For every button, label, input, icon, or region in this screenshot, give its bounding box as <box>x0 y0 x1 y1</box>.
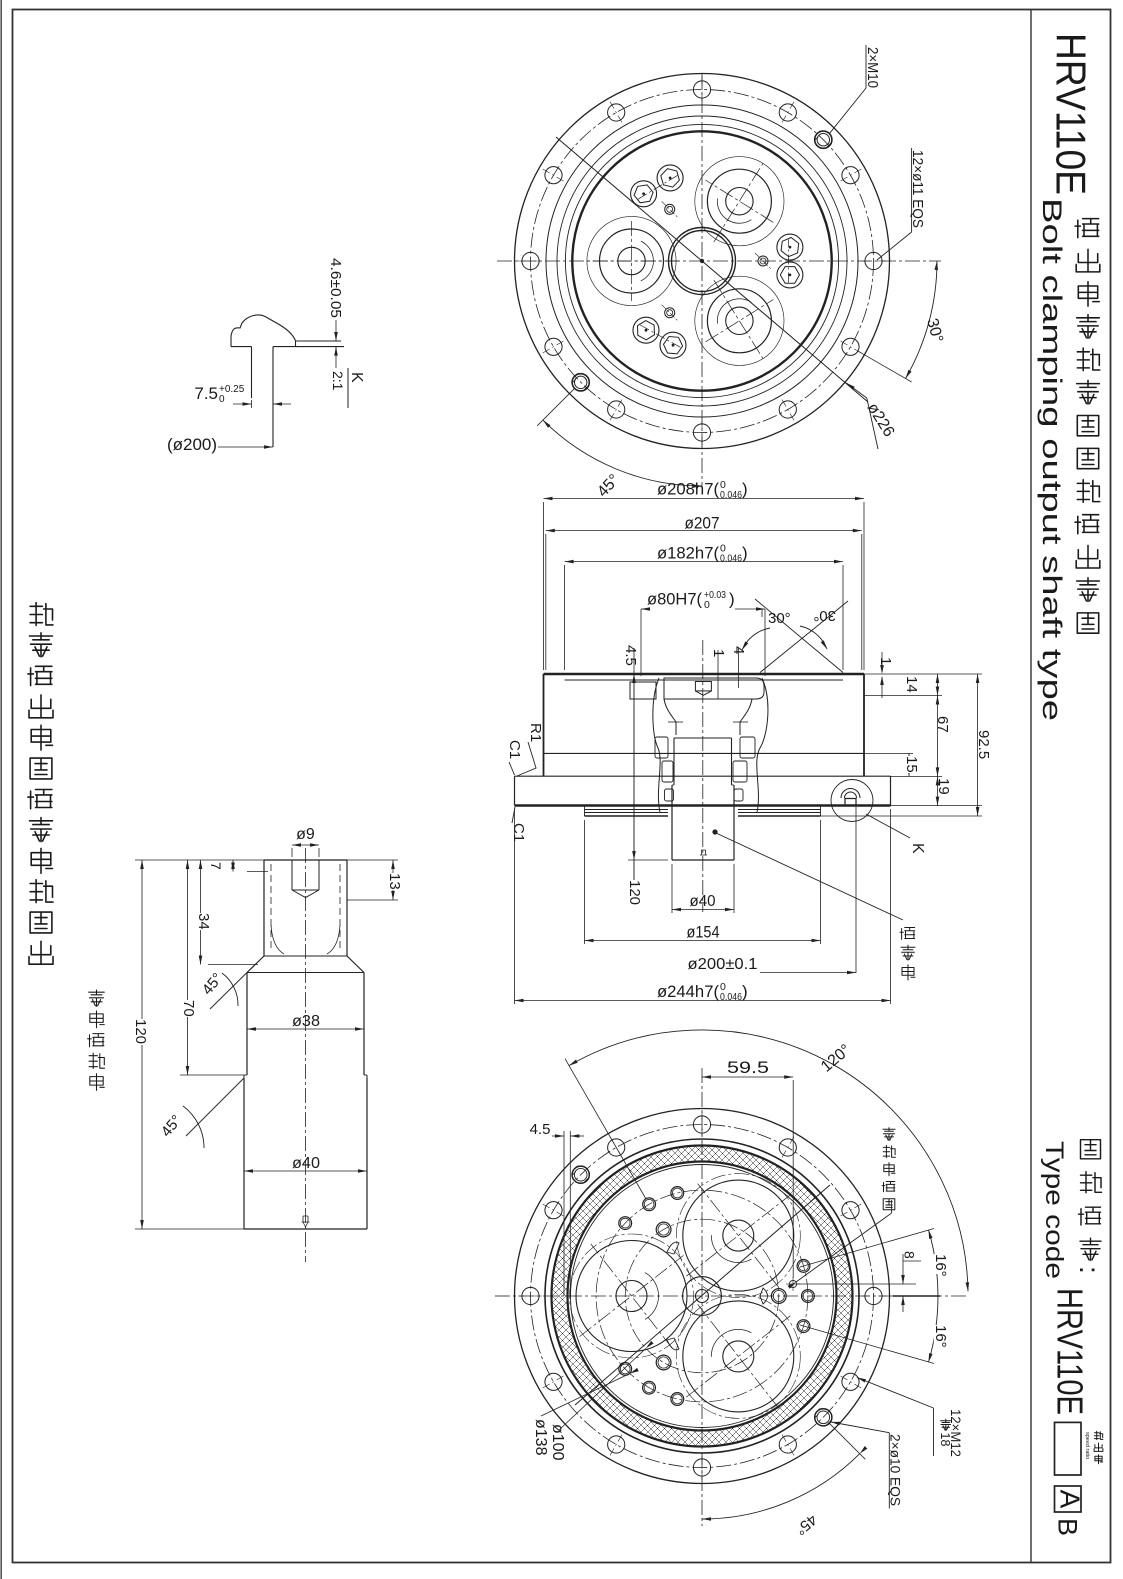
svg-text:4.5: 4.5 <box>530 1121 551 1138</box>
svg-text:ø200±0.1: ø200±0.1 <box>688 956 758 973</box>
svg-text:ø208h7(: ø208h7( <box>657 480 719 499</box>
svg-text:13: 13 <box>386 873 403 890</box>
svg-text:Bolt clamping output shaft typ: Bolt clamping output shaft type <box>1037 198 1067 721</box>
svg-text:HRV110E: HRV110E <box>1048 33 1095 195</box>
svg-text:ø40: ø40 <box>690 893 716 910</box>
svg-text:0.046: 0.046 <box>720 991 742 1003</box>
svg-text:): ) <box>729 589 735 608</box>
svg-text:): ) <box>742 982 748 1001</box>
svg-text:ø244h7(: ø244h7( <box>657 982 719 1001</box>
svg-text:ø38: ø38 <box>292 1013 320 1030</box>
svg-text:67: 67 <box>934 716 951 733</box>
svg-text:0: 0 <box>219 394 225 405</box>
svg-text:(ø200): (ø200) <box>167 435 217 454</box>
svg-text:1: 1 <box>710 649 727 657</box>
svg-text:): ) <box>742 543 748 562</box>
svg-text:0: 0 <box>704 599 710 611</box>
svg-text:120: 120 <box>626 880 643 905</box>
svg-text:7: 7 <box>208 862 224 870</box>
svg-text::: : <box>1074 1266 1105 1274</box>
svg-text:59.5: 59.5 <box>727 1058 769 1077</box>
svg-text:0.046: 0.046 <box>720 489 742 501</box>
svg-text:19: 19 <box>935 778 952 795</box>
svg-text:2×M10: 2×M10 <box>864 47 881 88</box>
svg-text:): ) <box>742 480 748 499</box>
svg-text:B: B <box>1053 1518 1083 1536</box>
svg-text:34: 34 <box>195 913 212 930</box>
svg-text:16°: 16° <box>932 1254 949 1277</box>
svg-text:ø207: ø207 <box>685 514 720 533</box>
svg-text:4.6±0.05: 4.6±0.05 <box>327 258 344 318</box>
svg-text:ø40: ø40 <box>292 1155 320 1172</box>
svg-text:92.5: 92.5 <box>975 730 992 759</box>
svg-text:ø9: ø9 <box>296 826 315 843</box>
svg-text:15: 15 <box>903 756 920 773</box>
svg-text:8: 8 <box>902 1251 918 1259</box>
svg-text:30°: 30° <box>768 610 791 627</box>
svg-text:ø154: ø154 <box>687 923 720 942</box>
svg-text:HRV110E: HRV110E <box>1050 1288 1091 1415</box>
svg-text:7.5: 7.5 <box>194 384 218 403</box>
svg-text:120: 120 <box>132 1019 149 1044</box>
svg-text:70: 70 <box>180 1000 197 1017</box>
svg-text:1: 1 <box>877 657 894 665</box>
svg-text:16°: 16° <box>932 1325 949 1348</box>
svg-text:ø138: ø138 <box>532 1419 549 1456</box>
svg-text:speed ratio: speed ratio <box>1084 1432 1090 1459</box>
svg-text:K: K <box>348 372 365 383</box>
svg-text:0.046: 0.046 <box>720 553 742 565</box>
svg-text:A: A <box>1055 1490 1086 1509</box>
svg-text:ø80H7(: ø80H7( <box>647 589 702 608</box>
svg-text:Type code: Type code <box>1040 1141 1068 1279</box>
svg-text:C1: C1 <box>510 823 527 842</box>
svg-text:R1: R1 <box>527 723 544 742</box>
svg-text:4.5: 4.5 <box>622 645 639 666</box>
svg-text:18: 18 <box>938 1433 952 1447</box>
svg-text:ø100: ø100 <box>549 1424 566 1461</box>
svg-text:2×ø10 EQS: 2×ø10 EQS <box>888 1434 904 1506</box>
svg-text:2:1: 2:1 <box>330 371 346 391</box>
svg-text:30°: 30° <box>813 607 836 624</box>
svg-text:K: K <box>909 843 926 854</box>
svg-text:C1: C1 <box>506 740 523 759</box>
svg-text:14: 14 <box>903 676 920 693</box>
svg-text:ø182h7(: ø182h7( <box>657 543 719 562</box>
